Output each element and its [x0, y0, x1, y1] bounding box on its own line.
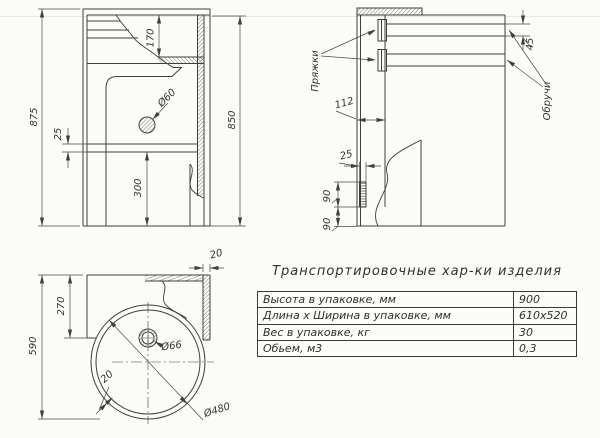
dim-90-upper: 90 — [322, 190, 333, 203]
arrowhead — [145, 152, 149, 161]
label-drain-dia: Ø66 — [160, 339, 183, 354]
side-view — [357, 8, 505, 226]
dim-45: 45 — [525, 38, 536, 51]
dim-300: 300 — [133, 178, 144, 197]
arrowhead — [195, 266, 204, 270]
arrowhead — [210, 266, 219, 270]
arrowhead — [68, 330, 72, 339]
label-buckles: Пряжки — [310, 50, 321, 92]
dim-112: 112 — [334, 96, 355, 112]
table-row-label: Обьем, м3 — [258, 341, 513, 356]
table-row-value: 900 — [513, 292, 576, 307]
dim-850: 850 — [227, 110, 238, 129]
arrowhead — [336, 218, 340, 227]
side-dim-lines — [321, 10, 546, 231]
arrowhead — [351, 164, 360, 168]
cardboard-edge-hatch-right — [198, 15, 204, 196]
label-bowl-dia: Ø480 — [201, 400, 231, 420]
dim-590: 590 — [28, 336, 39, 355]
arrowhead — [521, 16, 525, 25]
table-row-label: Высота в упаковке, мм — [258, 292, 513, 307]
arrowhead — [180, 396, 189, 405]
table-row-value: 610х520 — [513, 308, 576, 323]
table-row: Обьем, м3 0,3 — [258, 340, 576, 356]
arrowhead — [40, 275, 44, 284]
dim-270: 270 — [56, 296, 67, 315]
arrowhead — [357, 118, 366, 122]
arrowhead — [377, 118, 386, 122]
arrowhead — [367, 28, 376, 35]
table-row-label: Длина х Ширина в упаковке, мм — [258, 308, 513, 323]
arrowhead — [367, 57, 376, 62]
drawing-canvas: 875 850 170 25 300 Ø60 112 25 90 90 45 П… — [0, 0, 600, 438]
transport-characteristics-table: Высота в упаковке, мм 900 Длина х Ширина… — [257, 291, 577, 357]
dim-20-edge: 20 — [209, 248, 224, 262]
arrowhead — [157, 49, 161, 58]
dim-25-front: 25 — [53, 128, 64, 141]
arrowhead — [336, 199, 340, 208]
side-break-line — [376, 140, 421, 226]
arrowhead — [68, 275, 72, 284]
dim-20-rim: 20 — [99, 369, 116, 386]
arrowhead — [507, 29, 515, 38]
arrowhead — [40, 9, 44, 18]
table-title: Транспортировочные хар-ки изделия — [257, 264, 577, 279]
table-row-value: 0,3 — [513, 341, 576, 356]
dim-875: 875 — [29, 107, 40, 126]
arrowhead — [66, 136, 70, 145]
table-row-label: Вес в упаковке, кг — [258, 325, 513, 340]
dim-170: 170 — [146, 28, 157, 47]
arrowhead — [366, 164, 375, 168]
dim-90-lower: 90 — [322, 218, 333, 231]
label-hole-dia: Ø60 — [155, 86, 179, 110]
arrowhead — [336, 182, 340, 191]
center-lines — [112, 302, 214, 424]
arrowhead — [336, 207, 340, 216]
arrowhead — [40, 411, 44, 420]
lid-edge-hatch — [357, 8, 422, 15]
arrowhead — [145, 218, 149, 227]
arrowhead — [40, 218, 44, 227]
table-row-value: 30 — [513, 325, 576, 340]
label-hoops: Обручи — [541, 81, 553, 120]
arrowhead — [238, 16, 242, 25]
scanned-technical-drawing: 875 850 170 25 300 Ø60 112 25 90 90 45 П… — [0, 0, 600, 438]
arrowhead — [66, 152, 70, 161]
dim-25-side: 25 — [339, 149, 354, 163]
arrowhead — [238, 218, 242, 227]
table-row: Длина х Ширина в упаковке, мм 610х520 — [258, 307, 576, 323]
side-view-dimensions — [321, 10, 546, 231]
table-row: Высота в упаковке, мм 900 — [258, 292, 576, 307]
top-edge-hatch — [145, 275, 204, 281]
table-row: Вес в упаковке, кг 30 — [258, 324, 576, 340]
right-edge-hatch — [203, 275, 210, 340]
